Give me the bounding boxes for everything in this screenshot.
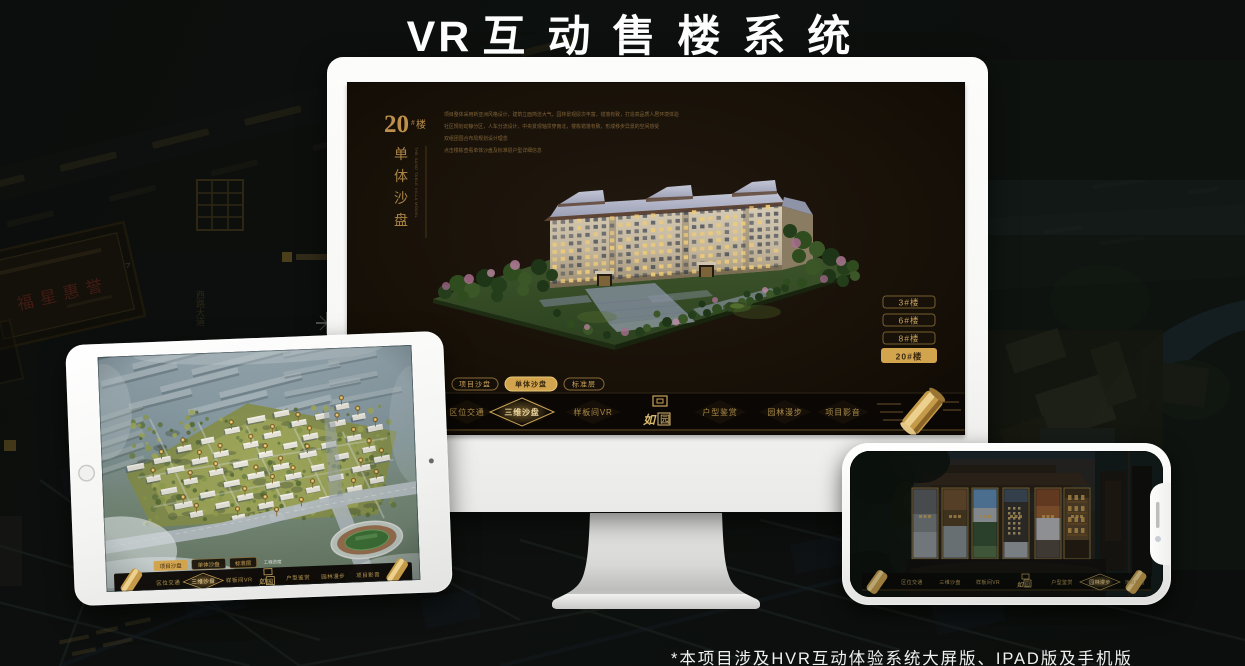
svg-text:6#楼: 6#楼 xyxy=(899,316,920,326)
svg-text:#: # xyxy=(411,118,415,127)
svg-text:项目影音: 项目影音 xyxy=(825,407,860,417)
svg-text:8#楼: 8#楼 xyxy=(899,334,920,344)
svg-text:如: 如 xyxy=(643,413,657,427)
svg-text:社区规划动静分区，人车分流设计，中央景观轴贯穿南北，楼栋错落: 社区规划动静分区，人车分流设计，中央景观轴贯穿南北，楼栋错落有致，形成移步异景的… xyxy=(444,123,659,130)
svg-text:楼: 楼 xyxy=(416,118,426,131)
svg-text:园: 园 xyxy=(660,414,670,426)
svg-text:双组团围合布局规划设计理念: 双组团围合布局规划设计理念 xyxy=(444,135,508,142)
svg-text:3#楼: 3#楼 xyxy=(899,298,920,308)
svg-text:20: 20 xyxy=(384,111,409,138)
svg-text:园林漫步: 园林漫步 xyxy=(767,407,802,417)
svg-text:样板间VR: 样板间VR xyxy=(573,407,612,417)
svg-text:盘: 盘 xyxy=(394,212,408,229)
svg-text:单体沙盘: 单体沙盘 xyxy=(515,380,547,389)
svg-text:单: 单 xyxy=(394,147,408,163)
svg-text:园: 园 xyxy=(267,579,274,586)
svg-text:户型鉴赏: 户型鉴赏 xyxy=(702,407,737,417)
svg-text:沙: 沙 xyxy=(394,192,408,207)
svg-text:THE SAND TABLE VILLA MODEL: THE SAND TABLE VILLA MODEL xyxy=(414,147,419,219)
svg-text:西路大道: 西路大道 xyxy=(195,290,205,327)
svg-text:标准层: 标准层 xyxy=(572,380,596,389)
svg-text:如: 如 xyxy=(258,578,266,586)
svg-text:项目沙盘: 项目沙盘 xyxy=(459,380,491,389)
svg-text:点击楼栋查看单体沙盘及标准层户型详细信息: 点击楼栋查看单体沙盘及标准层户型详细信息 xyxy=(444,147,542,154)
svg-text:三维沙盘: 三维沙盘 xyxy=(504,407,539,417)
svg-text:20#楼: 20#楼 xyxy=(896,352,923,362)
svg-text:项目整体采用新亚洲风格设计，建筑立面简洁大气，园林景观层次丰: 项目整体采用新亚洲风格设计，建筑立面简洁大气，园林景观层次丰富，错落有致，打造高… xyxy=(444,111,679,118)
svg-text:体: 体 xyxy=(394,169,408,185)
svg-text:区位交通: 区位交通 xyxy=(449,407,484,417)
